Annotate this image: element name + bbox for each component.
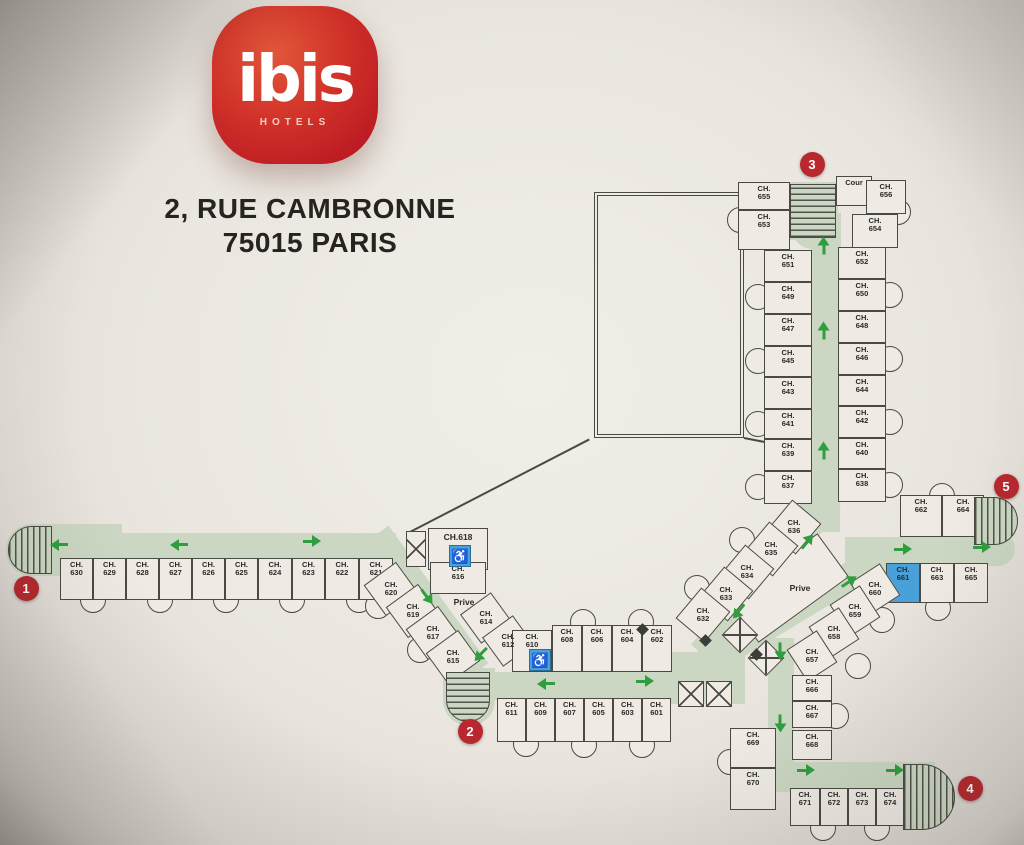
room-ch-637: CH.637 [764,471,812,504]
room-ch-652: CH.652 [838,247,886,279]
direction-arrow [169,539,188,551]
room-label: CH.635 [753,541,789,557]
room-label: CH.657 [794,648,830,664]
room-ch-648: CH.648 [838,311,886,343]
room-ch-655: CH.655 [738,182,790,210]
room-ch-605: CH.605 [584,698,613,742]
wall-line [408,439,590,534]
room-ch-624: CH.624 [258,558,292,600]
exit-badge-3: 3 [800,152,825,177]
wheelchair-icon: ♿ [529,649,551,671]
room-ch-646: CH.646 [838,343,886,375]
room-ch-625: CH.625 [225,558,258,600]
corridor-segment [811,232,839,512]
room-label: CH.658 [816,625,852,641]
room-ch-654: CH.654 [852,214,898,248]
room-label: CH.659 [837,603,873,619]
room-ch-640: CH.640 [838,438,886,469]
room-ch-668: CH.668 [792,730,832,760]
direction-arrow [49,539,68,551]
direction-arrow [818,441,830,460]
room-ch-670: CH.670 [730,768,776,810]
label-prive: Prive [454,597,475,607]
exit-badge-1: 1 [14,576,39,601]
label-prive: Prive [790,583,811,593]
room-ch-643: CH.643 [764,377,812,409]
room-ch-628: CH.628 [126,558,159,600]
room-ch-672: CH.672 [820,788,848,826]
elevator-icon [406,531,426,567]
room-ch-608: CH.608 [552,625,582,672]
wheelchair-icon: ♿ [449,545,471,567]
direction-arrow [775,715,787,734]
direction-arrow [973,541,992,553]
room-ch-626: CH.626 [192,558,225,600]
room-ch-663: CH.663 [920,563,954,603]
stair-2 [446,672,490,722]
room-ch-666: CH.666 [792,675,832,701]
room-ch-601: CH.601 [642,698,671,742]
direction-arrow [894,543,913,555]
room-ch-603: CH.603 [613,698,642,742]
floor-plan-sign-photo: ibis HOTELS 2, RUE CAMBRONNE 75015 PARIS… [0,0,1024,845]
room-ch-674: CH.674 [876,788,904,826]
room-ch-627: CH.627 [159,558,192,600]
stair-3 [790,184,836,238]
room-ch-667: CH.667 [792,701,832,728]
exit-badge-4: 4 [958,776,983,801]
direction-arrow [636,675,655,687]
elevator-icon [678,681,704,707]
exit-badge-5: 5 [994,474,1019,499]
room-ch-629: CH.629 [93,558,126,600]
room-ch-649: CH.649 [764,282,812,314]
room-ch-671: CH.671 [790,788,820,826]
room-ch-630: CH.630 [60,558,93,600]
direction-arrow [303,535,322,547]
room-ch-647: CH.647 [764,314,812,346]
room-ch-606: CH.606 [582,625,612,672]
direction-arrow [818,236,830,255]
room-label: CH.632 [685,607,721,623]
room-ch-645: CH.645 [764,346,812,377]
direction-arrow [775,643,787,662]
room-ch-607: CH.607 [555,698,584,742]
room-label: CH.660 [857,581,893,597]
room-label: CH.620 [373,581,409,597]
room-label: CH.612 [490,633,526,649]
room-ch-665: CH.665 [954,563,988,603]
label-ch618: CH.618 [444,532,473,542]
room-ch-642: CH.642 [838,406,886,438]
room-ch-602: CH.602 [642,625,672,672]
room-ch-609: CH.609 [526,698,555,742]
room-ch-623: CH.623 [292,558,325,600]
room-ch-662: CH.662 [900,495,942,537]
courtyard [594,192,744,438]
direction-arrow [886,764,905,776]
room-ch-651: CH.651 [764,250,812,282]
bay-window [845,653,871,679]
elevator-icon [706,681,732,707]
room-label: CH.633 [708,586,744,602]
room-ch-641: CH.641 [764,409,812,439]
direction-arrow [818,321,830,340]
direction-arrow [797,764,816,776]
room-ch-656: CH.656 [866,180,906,214]
room-ch-669: CH.669 [730,728,776,768]
room-label: CH.634 [729,564,765,580]
room-ch-622: CH.622 [325,558,359,600]
direction-arrow [536,678,555,690]
room-ch-644: CH.644 [838,375,886,406]
room-label: CH.614 [468,610,504,626]
room-ch-638: CH.638 [838,469,886,502]
room-ch-611: CH.611 [497,698,526,742]
room-label: CH.615 [435,649,471,665]
room-label: CH.617 [415,625,451,641]
room-ch-653: CH.653 [738,210,790,250]
stair-4 [903,764,955,830]
room-ch-673: CH.673 [848,788,876,826]
room-ch-639: CH.639 [764,439,812,471]
exit-badge-2: 2 [458,719,483,744]
floor-plan: CH.630CH.629CH.628CH.627CH.626CH.625CH.6… [0,0,1024,845]
room-ch-650: CH.650 [838,279,886,311]
room-ch-604: CH.604 [612,625,642,672]
stair-1 [8,526,52,574]
